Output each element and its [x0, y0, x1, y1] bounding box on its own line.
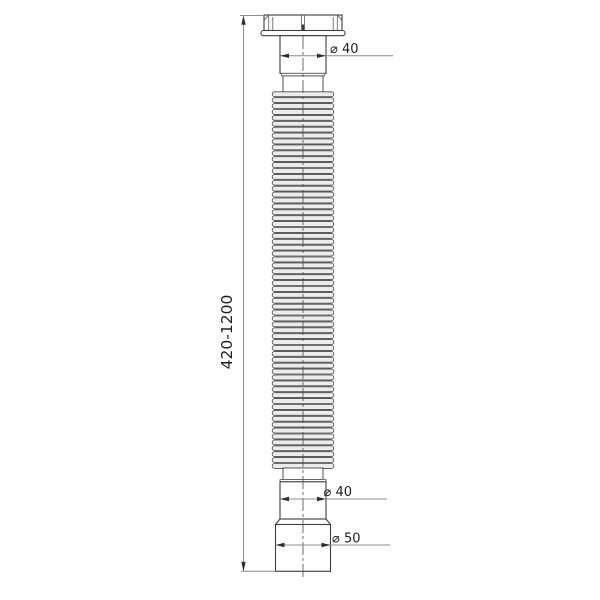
technical-drawing: 420-1200 ⌀ 40 ⌀ 40 ⌀ 50 — [0, 0, 600, 600]
drawing-canvas: 420-1200 ⌀ 40 ⌀ 40 ⌀ 50 — [0, 0, 600, 600]
outlet-diameter-label: ⌀ 50 — [332, 531, 361, 546]
length-dimension — [240, 16, 276, 572]
length-dimension-label: 420-1200 — [218, 295, 236, 370]
bottom-diameter-label: ⌀ 40 — [324, 485, 353, 500]
top-nut — [261, 15, 345, 36]
top-diameter-label: ⌀ 40 — [330, 42, 359, 57]
